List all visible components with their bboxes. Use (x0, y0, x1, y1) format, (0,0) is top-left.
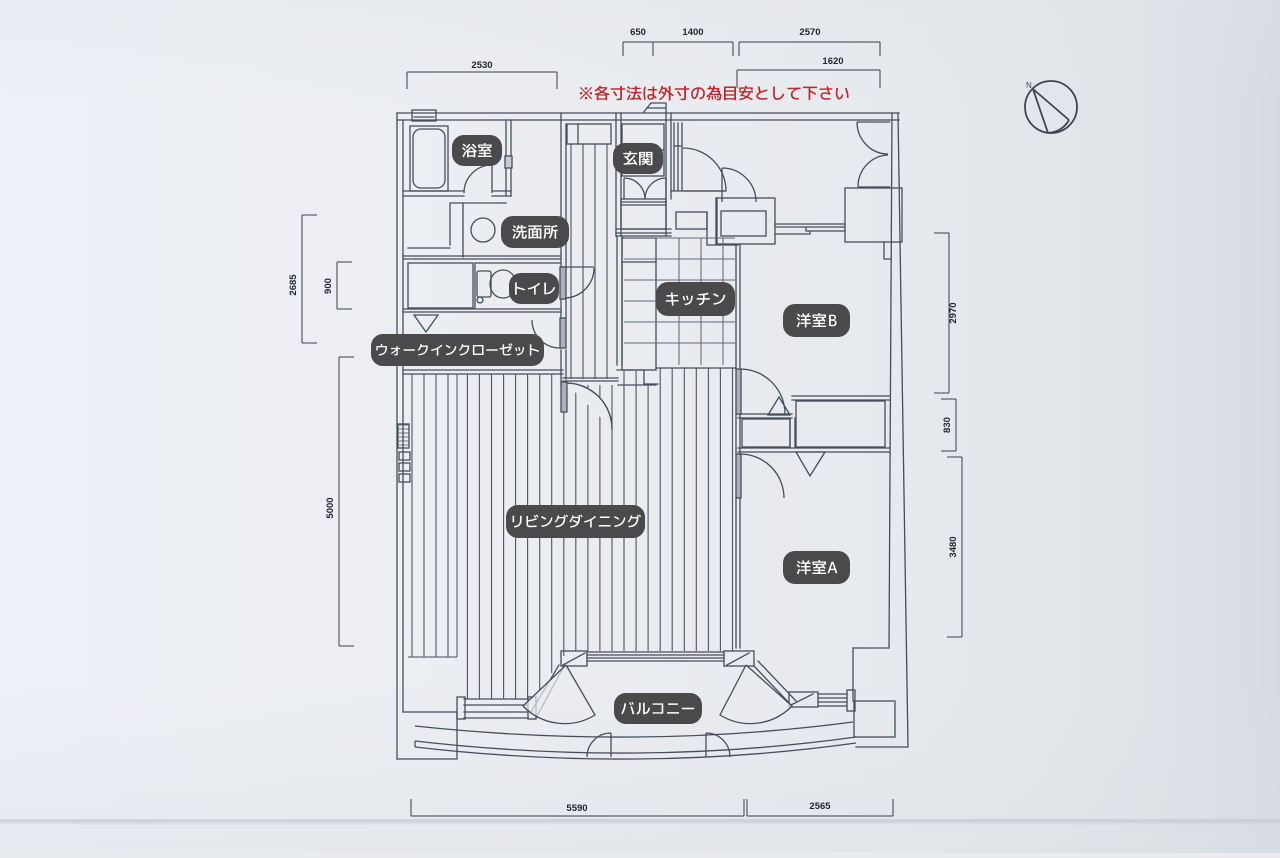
svg-text:2565: 2565 (809, 801, 831, 812)
svg-text:830: 830 (942, 417, 953, 433)
svg-text:3480: 3480 (948, 536, 959, 557)
svg-text:2530: 2530 (471, 60, 492, 71)
svg-text:5000: 5000 (325, 497, 336, 518)
svg-text:1620: 1620 (822, 56, 843, 67)
svg-text:2570: 2570 (799, 27, 820, 38)
svg-text:5590: 5590 (566, 803, 587, 814)
svg-text:2970: 2970 (948, 302, 959, 323)
svg-text:650: 650 (630, 27, 646, 38)
svg-text:900: 900 (323, 278, 334, 294)
svg-text:2685: 2685 (288, 274, 299, 296)
svg-text:N: N (1026, 81, 1032, 90)
svg-text:1400: 1400 (682, 27, 703, 38)
